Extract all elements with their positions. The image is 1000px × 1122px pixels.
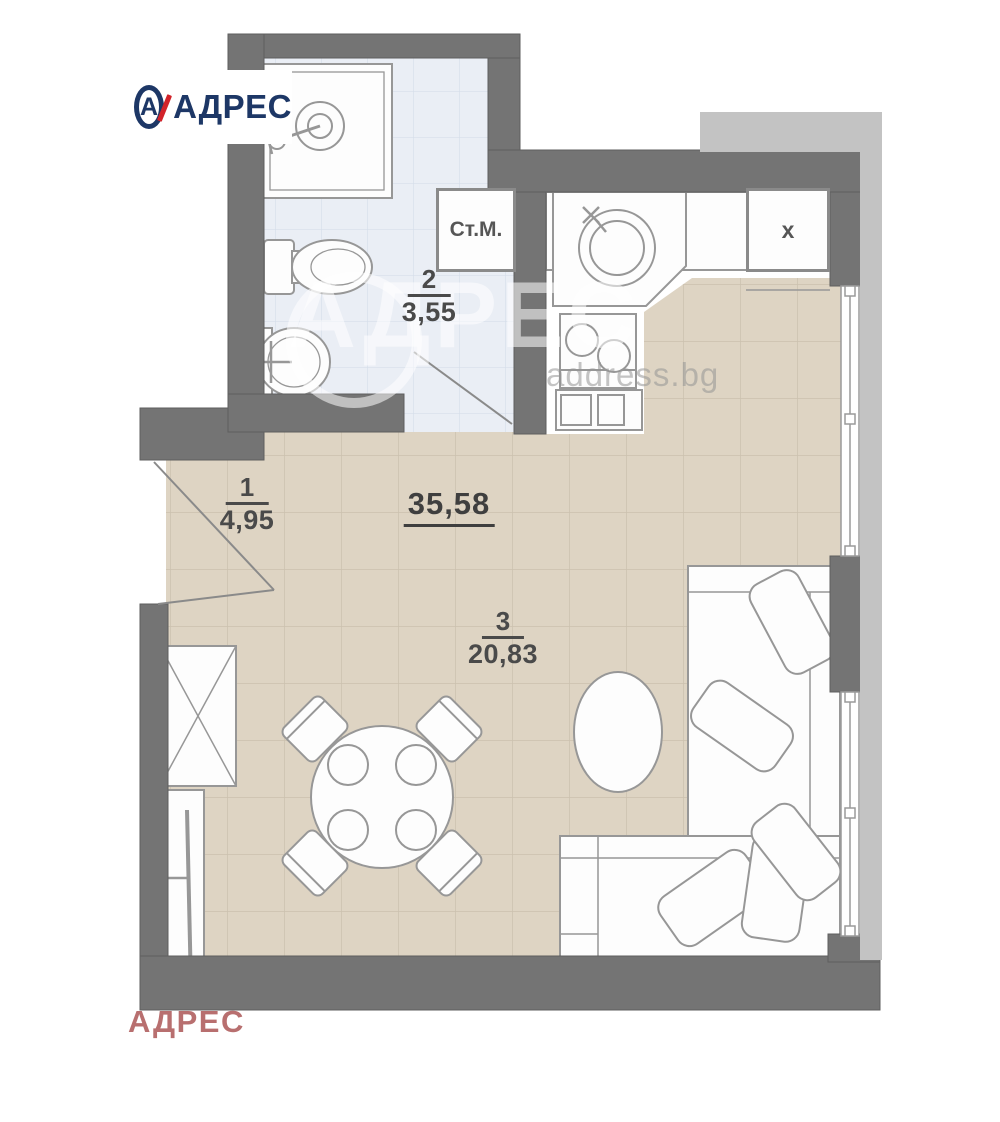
wall-outer-band-right xyxy=(860,112,882,960)
room-area: 20,83 xyxy=(468,639,538,670)
room-number: 1 xyxy=(226,474,268,505)
window-mullion xyxy=(845,414,855,424)
floor-plan-drawing xyxy=(0,0,1000,1122)
room-label-3: 3 20,83 xyxy=(468,608,538,670)
toilet-bowl-inner xyxy=(311,249,365,285)
stove-burner xyxy=(566,324,598,356)
wall-segment xyxy=(830,192,862,286)
kitchen-sink-basin xyxy=(561,395,591,425)
window-mullion xyxy=(845,546,855,556)
room-label-1: 1 4,95 xyxy=(220,474,275,536)
window-mullion xyxy=(845,692,855,702)
room-area: 3,55 xyxy=(402,297,457,328)
toilet-tank xyxy=(264,240,294,294)
window-mullion xyxy=(845,808,855,818)
window-mullion xyxy=(845,286,855,296)
kitchen-corner-sink-inner xyxy=(590,221,644,275)
appliance-box: x xyxy=(746,188,830,272)
coffee-table xyxy=(574,672,662,792)
logo: А АДРЕС xyxy=(126,70,292,144)
room-area: 4,95 xyxy=(220,505,275,536)
total-area-label: 35,58 xyxy=(404,486,495,527)
wall-segment xyxy=(488,58,520,162)
plate xyxy=(328,745,368,785)
dining-table xyxy=(311,726,453,868)
room-number: 3 xyxy=(482,608,524,639)
wall-segment xyxy=(830,556,862,692)
wall-segment xyxy=(488,150,862,192)
room-label-2: 2 3,55 xyxy=(402,266,457,328)
storage-room-box: Ст.М. xyxy=(436,188,516,272)
kitchen-sink-basin xyxy=(598,395,624,425)
plate xyxy=(396,810,436,850)
logo-red-slash xyxy=(157,94,172,122)
wall-segment xyxy=(140,604,168,960)
plate xyxy=(328,810,368,850)
storage-room-label: Ст.М. xyxy=(450,218,503,242)
wall-segment xyxy=(140,956,880,1010)
plate xyxy=(396,745,436,785)
room-number: 2 xyxy=(408,266,450,297)
floor-plan-canvas: Ст.М. x 1 4,95 2 3,55 3 20,83 35,58 АДРЕ… xyxy=(0,0,1000,1122)
wall-outer-band-top xyxy=(700,112,882,152)
wall-segment xyxy=(514,192,546,434)
logo-icon: А xyxy=(134,85,164,129)
stove-burner xyxy=(598,340,630,372)
appliance-label: x xyxy=(782,217,795,244)
watermark-bottom: АДРЕС xyxy=(128,1004,245,1040)
logo-text: АДРЕС xyxy=(173,88,292,126)
window-mullion xyxy=(845,926,855,936)
wall-segment xyxy=(228,34,520,58)
logo-icon-letter: А xyxy=(140,95,158,120)
wall-segment xyxy=(228,394,404,432)
